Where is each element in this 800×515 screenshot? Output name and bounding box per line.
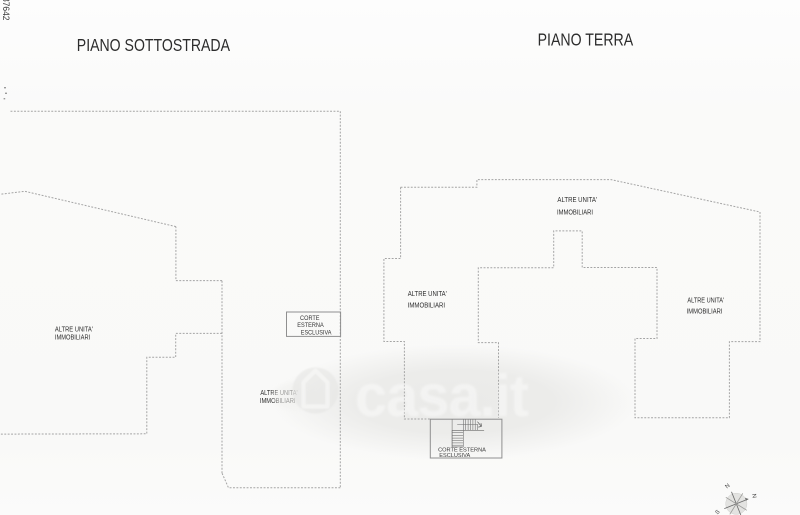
svg-text:87642: 87642 [0,0,11,21]
svg-text:ALTRE UNITA': ALTRE UNITA' [687,297,724,304]
svg-text:IMMOBILIARI: IMMOBILIARI [557,209,593,216]
svg-text:ALTRE UNITA': ALTRE UNITA' [557,197,597,204]
svg-text:ALTRE UNITA': ALTRE UNITA' [408,291,447,298]
svg-text:ESCLUSIVA: ESCLUSIVA [439,453,470,459]
svg-text:PIANO TERRA: PIANO TERRA [538,29,634,49]
svg-text:ESCLUSIVA: ESCLUSIVA [301,330,332,337]
svg-text:IMMOBILIARI: IMMOBILIARI [55,335,90,342]
svg-text:ALTRE UNITA': ALTRE UNITA' [55,326,93,333]
svg-text:ESTERNA: ESTERNA [297,322,324,329]
svg-text:casa.it: casa.it [355,363,528,429]
svg-text:CORTE: CORTE [300,315,320,322]
svg-text:PIANO SOTTOSTRADA: PIANO SOTTOSTRADA [77,35,230,55]
svg-text:IMMOBILIARI: IMMOBILIARI [687,309,723,316]
svg-text:IMMOBILIARI: IMMOBILIARI [408,303,445,310]
